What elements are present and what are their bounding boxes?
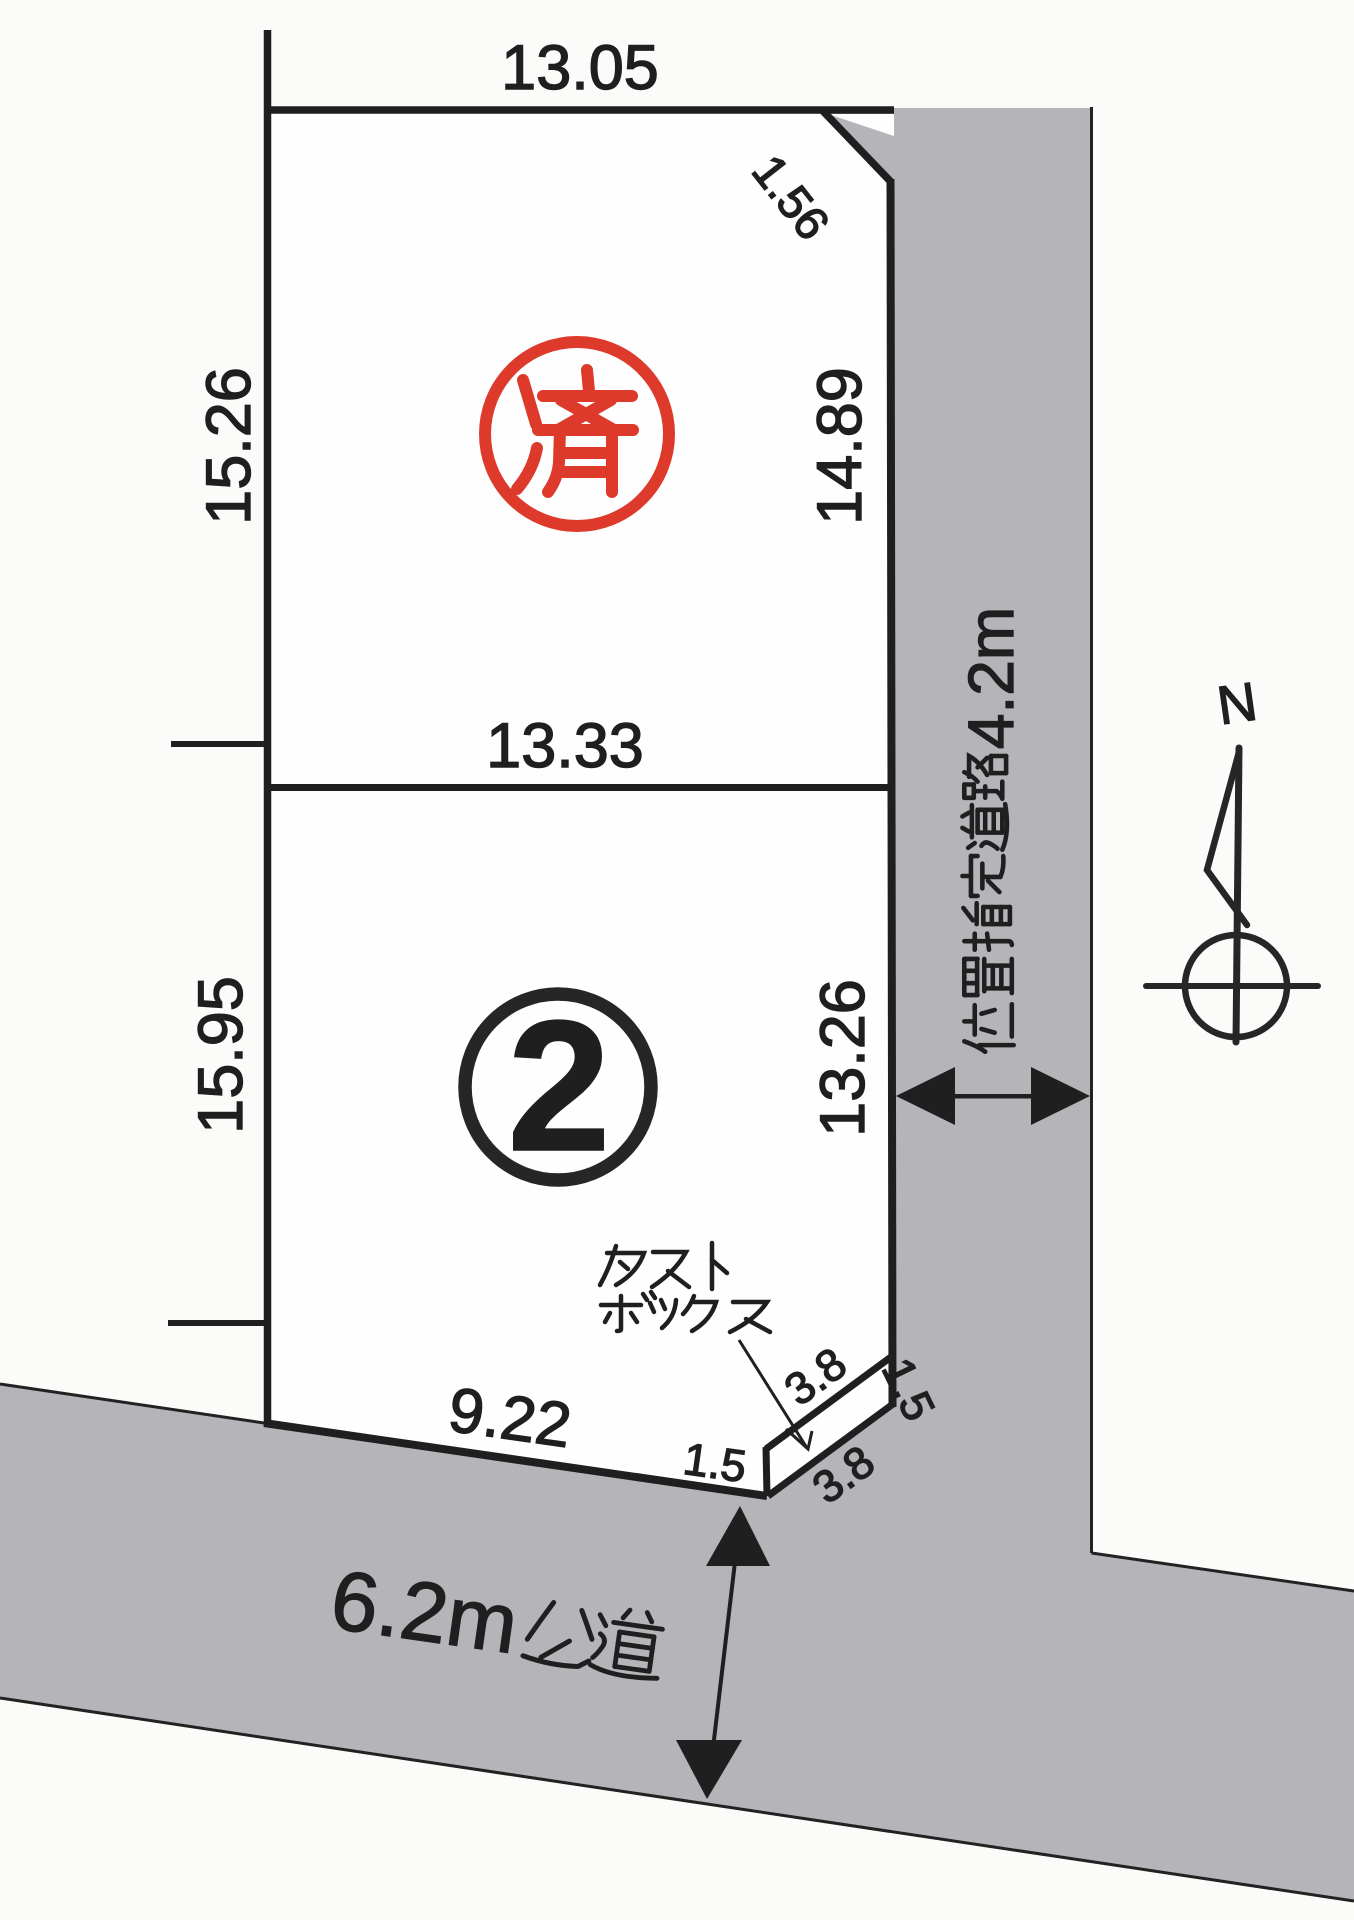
- svg-text:14.89: 14.89: [805, 367, 875, 525]
- svg-text:13.05: 13.05: [501, 33, 659, 103]
- svg-text:2: 2: [507, 983, 610, 1190]
- svg-text:4.2m: 4.2m: [955, 607, 1027, 749]
- svg-text:1.5: 1.5: [680, 1433, 749, 1492]
- svg-text:15.95: 15.95: [186, 976, 256, 1134]
- svg-text:N: N: [1214, 672, 1261, 737]
- svg-text:13.26: 13.26: [808, 979, 878, 1137]
- svg-text:13.33: 13.33: [486, 711, 644, 781]
- svg-text:15.26: 15.26: [194, 367, 264, 525]
